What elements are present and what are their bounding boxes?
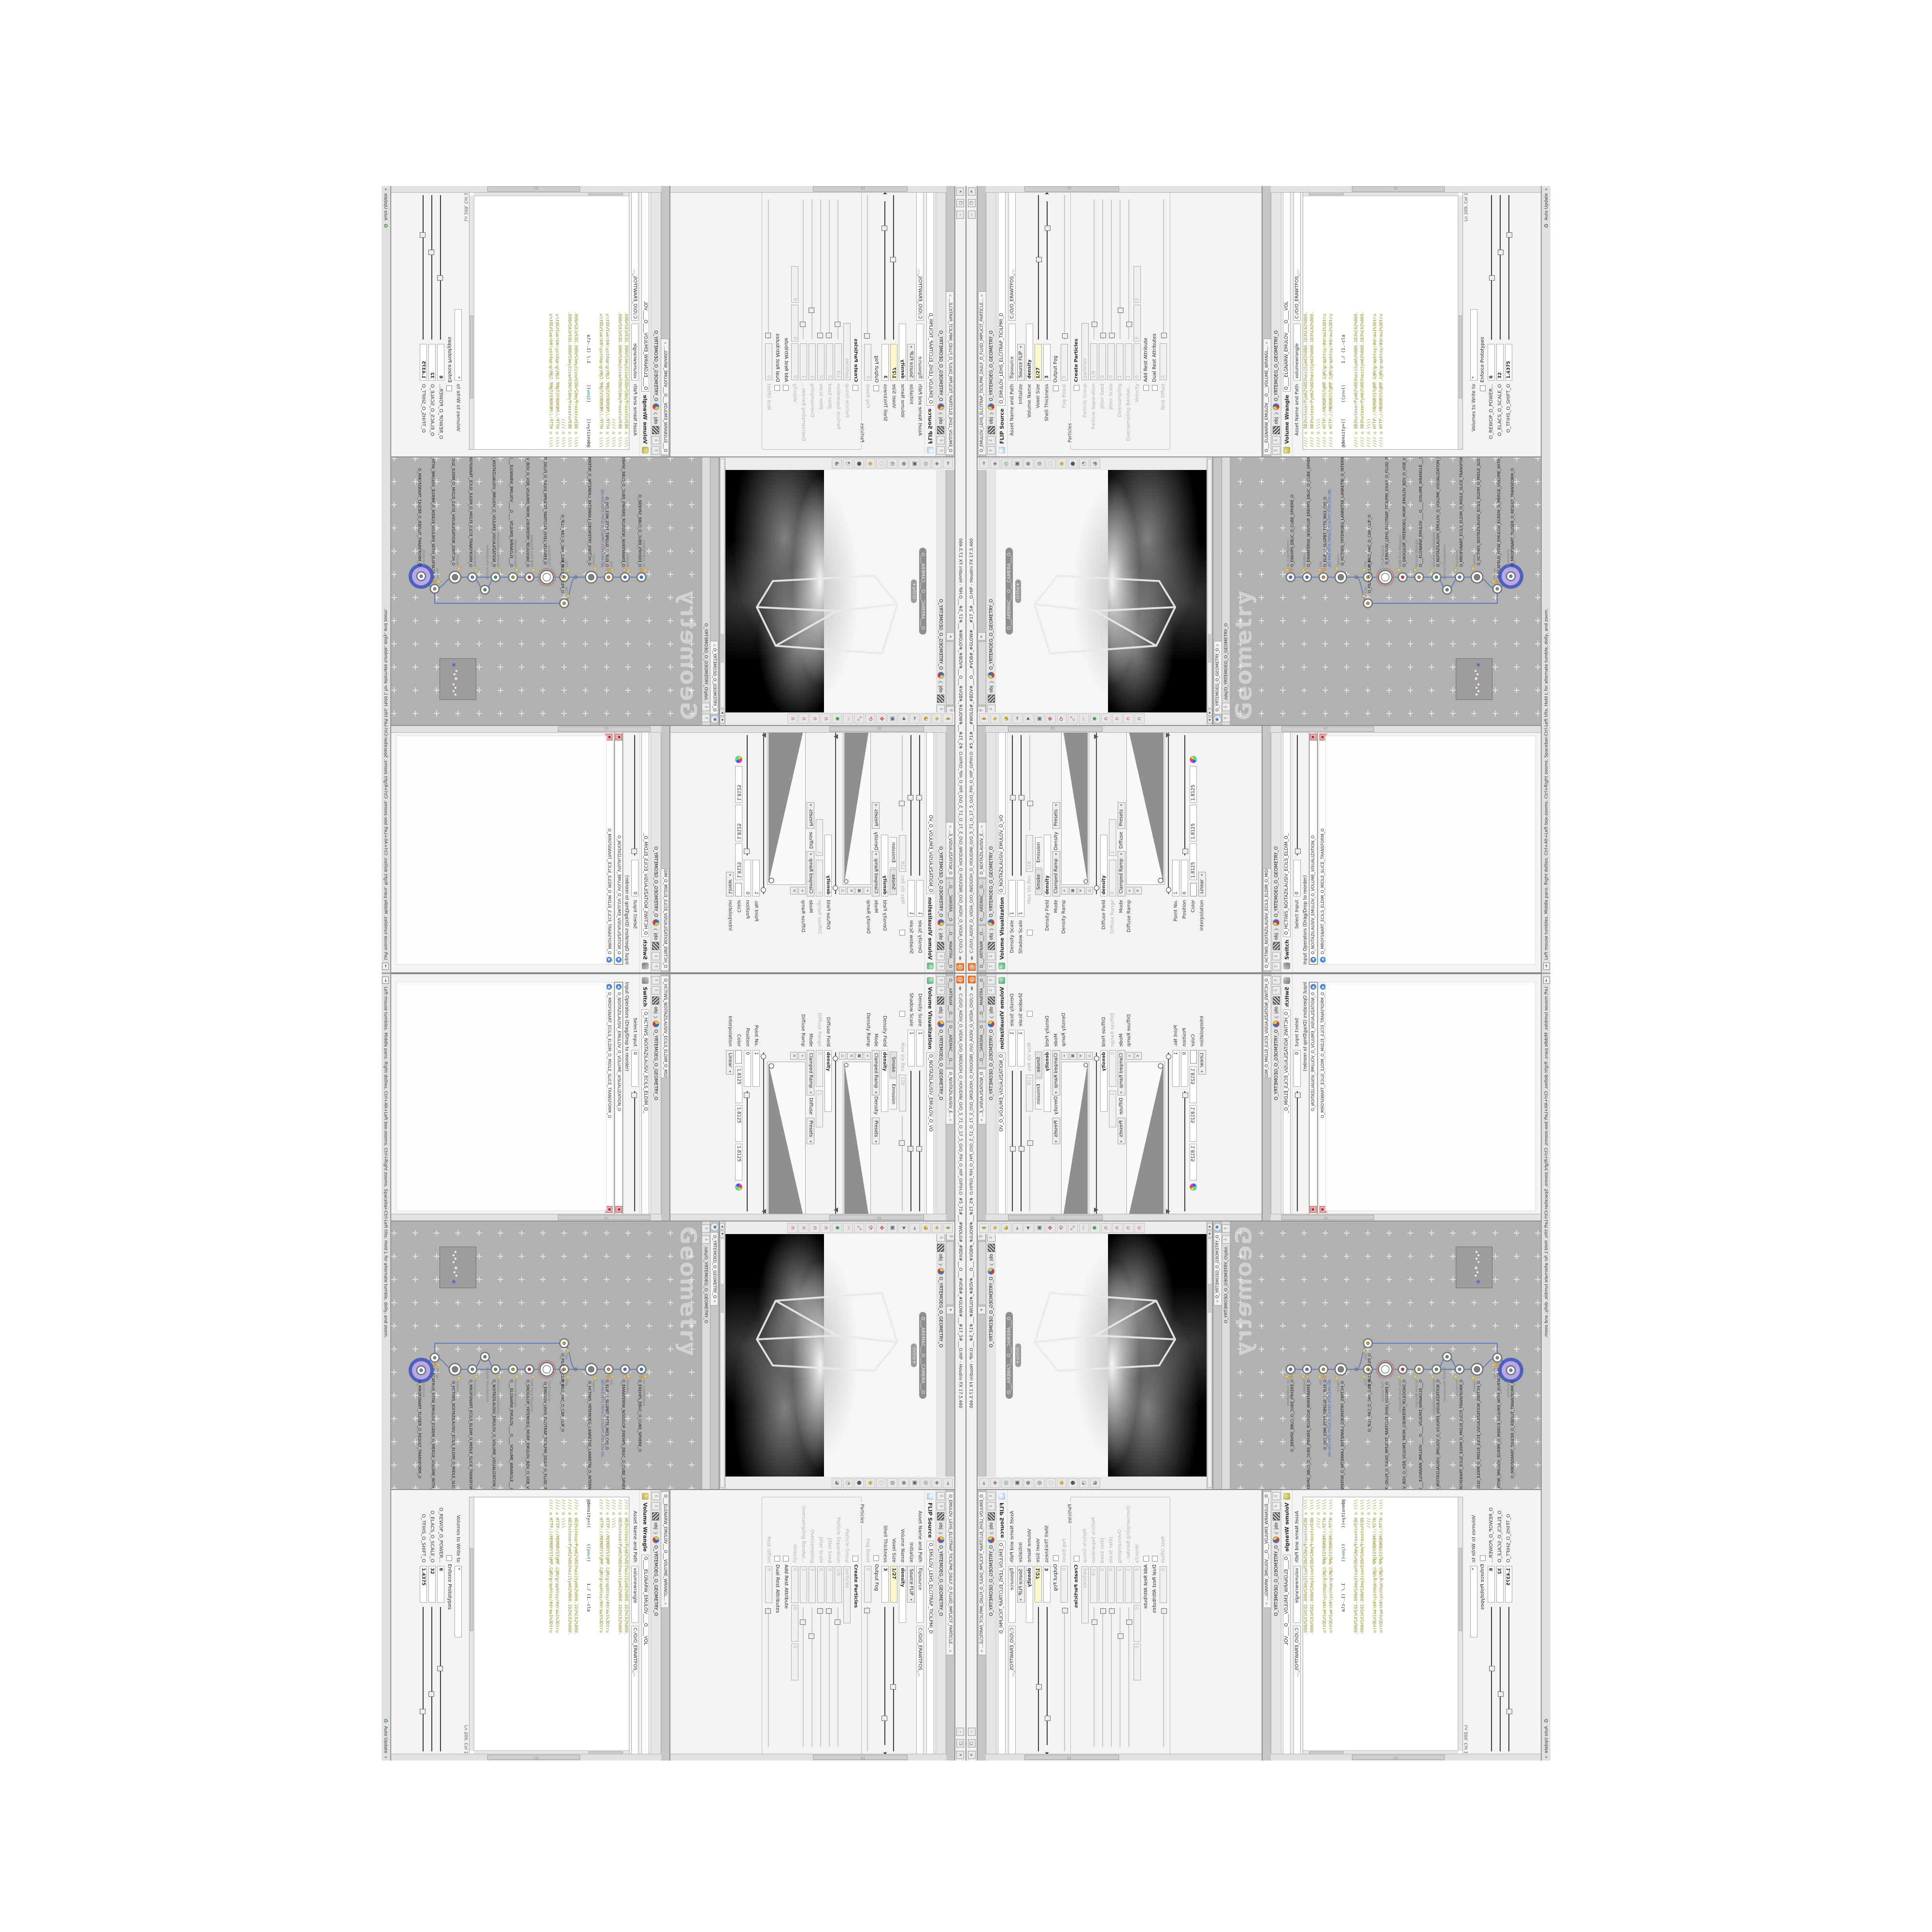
expand-icon[interactable]: ▸ — [946, 1306, 954, 1314]
show-handles-icon[interactable]: ◈ — [990, 714, 1000, 724]
tab-camera[interactable]: O___AREMAC___O... — [946, 1022, 954, 1068]
translate-icon[interactable]: ✥ — [1046, 714, 1056, 724]
tab-camera[interactable]: O___AREMAC___O... — [978, 1022, 986, 1068]
node-name-field[interactable]: O_HCTIWS_NOITAZILAUSIV_ECILS_ELDIM_O_ — [641, 729, 649, 937]
param-field[interactable]: 1 — [1017, 1030, 1024, 1066]
projection-pill[interactable]: Ortho ▾ — [1015, 580, 1021, 603]
list-item[interactable]: ◀O_NOITAZILAUSIV_EMULOV_O_VOLUME_VISUALI… — [1309, 982, 1318, 1215]
param-field[interactable]: 1 — [916, 1030, 923, 1066]
pane-tab-bar[interactable]: ◉ ⚲ ▸ — [946, 457, 954, 725]
node-name-field[interactable]: O_EMULOV_LEHS_ELCITRAP_TICILPMI_D — [926, 189, 934, 406]
tab-volume-visualization[interactable]: O_NOITAZILAUSIV_E...✕ — [978, 822, 986, 877]
slider[interactable] — [635, 1091, 636, 1211]
slider[interactable] — [1500, 195, 1501, 340]
show-handles-icon[interactable]: ◈ — [932, 714, 942, 724]
tab-mantra[interactable]: O___ARTNAM___O... — [978, 925, 986, 971]
network-node[interactable]: SwitchO_HCTIWS_NOITAZILAUSIV_ECILS_ELDIM… — [449, 1364, 461, 1489]
close-icon[interactable]: ✕ — [1265, 341, 1269, 344]
node-name-field[interactable]: O_EMULOV_LEHS_ELCITRAP_TICILPMI_D — [926, 1541, 934, 1758]
breadcrumb-node[interactable]: O_YRTEMOEG_O_GEOMETRY_O — [989, 846, 994, 917]
slider[interactable] — [1038, 195, 1039, 340]
lock-camera-icon[interactable]: ▣ — [909, 459, 920, 469]
radial-menu-icon[interactable]: ◉ — [710, 1223, 719, 1231]
scrollbar[interactable] — [986, 1754, 1262, 1761]
camera-name-pill[interactable]: O___AREMAC___O___CAMERA___O — [1006, 1312, 1013, 1399]
secure-selection-icon[interactable]: ◗ — [979, 1223, 989, 1233]
rotate-icon[interactable]: ⟳ — [865, 1223, 875, 1233]
projection-pill[interactable]: Ortho ▾ — [1015, 1344, 1021, 1367]
nav-down-icon[interactable]: ⇩ — [702, 1236, 710, 1244]
scrollbar[interactable] — [986, 726, 1262, 733]
snap-multi-icon[interactable]: ∩ — [1135, 1223, 1145, 1233]
tab-smoke[interactable]: Smoke — [1035, 1051, 1042, 1078]
network-node[interactable]: PolyWireO_EMARFERIW_NOGYLOP_EREHPS_EBUC_… — [621, 1365, 631, 1489]
initialize-dropdown[interactable]: Source FLIP — [1017, 1566, 1025, 1603]
pane-tab-bar[interactable]: O_HCTIWS_NOITAZILAUSIV_ECILS_ELDIM_O_MID… — [1263, 726, 1271, 972]
snap-point-icon[interactable]: ∩ — [798, 1223, 809, 1233]
timeline-track[interactable] — [720, 1238, 724, 1488]
slider[interactable] — [1128, 199, 1129, 339]
tab-smoke[interactable]: Smoke — [890, 869, 897, 895]
ramp-handle-track[interactable] — [833, 1052, 838, 1216]
network-node[interactable]: Volume WrangleO___ELGNARW_EMULOV____O___… — [509, 1365, 519, 1489]
param-field[interactable]: 0 — [631, 860, 639, 896]
prev-frame-icon[interactable]: ◀ — [1207, 717, 1212, 724]
slider[interactable] — [1012, 1071, 1013, 1211]
slider[interactable] — [1491, 195, 1492, 340]
network-node[interactable]: Volume WrangleO___ELGNARW_EMULOV____O___… — [1414, 1365, 1424, 1489]
tab-mantra[interactable]: O___ARTNAM___O... — [946, 976, 954, 1021]
network-node[interactable]: TransformO_MROFSNART_TLUSER_O_RESULT_TRA… — [409, 468, 434, 589]
nav-down-icon[interactable]: ⇩ — [937, 705, 945, 713]
breadcrumb-root[interactable]: obj — [1274, 1522, 1279, 1529]
select-mode-icon[interactable]: ▣ — [887, 1223, 897, 1233]
select-mode-icon[interactable]: ▣ — [1035, 1223, 1045, 1233]
scrollbar[interactable] — [986, 1214, 1262, 1221]
prev-frame-icon[interactable]: ◀ — [1207, 1223, 1212, 1230]
network-minimap[interactable] — [1456, 1247, 1492, 1288]
color-wheel-icon[interactable] — [735, 1183, 742, 1191]
tab-volume-visualization[interactable]: O_NOITAZILAUSIV_E...✕ — [946, 1069, 954, 1124]
network-node[interactable]: FileO_ELIF_O_SLGPBT_PETS_M03_OBJ_OJBO.M0… — [1318, 1365, 1332, 1457]
list-item[interactable]: ◀O_NOITAZILAUSIV_EMULOV_O_VOLUME_VISUALI… — [614, 732, 623, 965]
hide-objects-icon[interactable]: ⊗ — [1023, 1478, 1034, 1488]
presets-dropdown[interactable]: Presets — [1052, 1118, 1060, 1145]
translate-icon[interactable]: ✥ — [876, 714, 886, 724]
slider[interactable] — [1184, 1091, 1185, 1211]
transform-axis-icon[interactable]: ✱ — [1090, 714, 1100, 724]
tab-flip-source[interactable]: O_EMULOV_LEHS_ELCITRAP_TICILPMI_DIULF_O_… — [946, 1492, 954, 1655]
scrollbar[interactable] — [1271, 186, 1541, 193]
slider[interactable] — [1064, 195, 1065, 340]
breadcrumb-node[interactable]: O_YRTEMOEG_O_GEOMETRY_O — [989, 330, 994, 401]
tab-switch[interactable]: O_HCTIWS_NOITAZILAUSIV_ECILS_ELDIM_O_MID… — [661, 868, 669, 971]
close-icon[interactable]: ✕ — [712, 1300, 716, 1303]
back-icon[interactable]: ◄ — [943, 1478, 953, 1488]
pose-icon[interactable]: ✂ — [1079, 714, 1089, 724]
tab-emission[interactable]: Emission — [890, 1079, 897, 1109]
breadcrumb-root[interactable]: obj — [653, 1522, 659, 1529]
breadcrumb-node[interactable]: O_YRTEMOEG_O_GEOMETRY_O — [938, 330, 944, 401]
headlight-icon[interactable]: ◉ — [865, 1478, 875, 1488]
slider[interactable] — [920, 735, 921, 876]
pane-tab-bar[interactable]: ◉ O_YRTEMOEG_O_GEOMETRY_O✕ — [710, 1222, 719, 1489]
ramp-buttons[interactable]: +▦✕△ — [1061, 887, 1093, 895]
checkbox[interactable] — [783, 385, 789, 391]
secure-selection-icon[interactable]: ◗ — [943, 714, 953, 724]
snap-grid-icon[interactable]: ∩ — [821, 714, 831, 724]
delete-icon[interactable]: ✖ — [606, 734, 612, 740]
slider[interactable] — [1297, 735, 1298, 855]
network-node[interactable]: Volume Visualization — [1443, 1352, 1451, 1402]
close-icon[interactable]: ✕ — [980, 1119, 984, 1122]
slider[interactable] — [432, 195, 433, 340]
auto-update-dropdown[interactable]: Auto Update — [1544, 193, 1549, 220]
mode-dropdown[interactable]: Clamped Ramp — [1052, 1050, 1060, 1095]
minimize-button[interactable]: – — [957, 1728, 965, 1736]
checkbox[interactable] — [874, 385, 880, 391]
nav-down-icon[interactable]: ⇩ — [987, 952, 995, 960]
slider[interactable] — [1120, 1607, 1121, 1747]
breadcrumb-node[interactable]: O_YRTEMOEG_O_GEOMETRY_O — [1274, 846, 1279, 917]
slider[interactable] — [838, 199, 839, 339]
snap-multi-icon[interactable]: ∩ — [1135, 714, 1145, 724]
presets-dropdown[interactable]: Presets — [872, 802, 880, 829]
slider[interactable] — [812, 1607, 813, 1747]
window-titlebar[interactable]: @ ◀▶ C:/O/O_AIDIV_O_VIDIA_O/O_INIDUOH_O_… — [955, 186, 966, 973]
light-icon[interactable]: ○ — [1046, 1478, 1056, 1488]
slider[interactable] — [747, 1091, 748, 1211]
close-icon[interactable]: ✕ — [980, 1649, 984, 1652]
pose-icon[interactable]: ✂ — [843, 714, 853, 724]
breadcrumb-root[interactable]: obj — [989, 1254, 994, 1261]
slider[interactable] — [885, 1607, 886, 1745]
checkbox[interactable] — [783, 1556, 789, 1562]
param-field[interactable]: 128 — [1026, 1075, 1033, 1111]
breadcrumb-root[interactable]: obj — [989, 417, 994, 424]
checkbox[interactable] — [1027, 930, 1033, 936]
folder-tabs[interactable]: Smoke Emission — [1035, 1051, 1042, 1221]
breadcrumb-root[interactable]: obj — [653, 417, 659, 424]
slider[interactable] — [1508, 1607, 1509, 1751]
translate-icon[interactable]: ✥ — [876, 1223, 886, 1233]
lock-camera-icon[interactable]: ▣ — [1012, 459, 1023, 469]
slider[interactable] — [867, 195, 868, 340]
scrollbar[interactable] — [670, 726, 946, 733]
lock-camera-icon[interactable]: ▣ — [909, 1478, 920, 1488]
tab-network[interactable]: O_YRTEMOEG_O_GEOMETRY_O✕ — [1214, 1232, 1222, 1306]
headlight-icon[interactable]: ◉ — [1057, 459, 1067, 469]
snap-prim-icon[interactable]: ∩ — [1112, 1223, 1122, 1233]
network-node[interactable]: FileO_ELIF_O_SLGPBT_PETS_M03_OBJ_OJBO.M0… — [600, 489, 614, 582]
param-field[interactable]: density — [1044, 1050, 1051, 1112]
mode-dropdown[interactable]: Clamped Ramp — [807, 851, 815, 896]
translate-icon[interactable]: ✥ — [1046, 1223, 1056, 1233]
network-node[interactable]: VDB from PolygonsO_SNOGILOP_YRTEMOEG_MOR… — [525, 457, 535, 582]
auto-update-dropdown[interactable]: Auto Update — [384, 193, 388, 220]
ramp-handle-track[interactable] — [1094, 731, 1099, 894]
slider[interactable] — [1120, 199, 1121, 339]
viewport-canvas[interactable]: O___AREMAC___O___CAMERA___O Ortho ▾ — [725, 1234, 936, 1477]
layout-icon[interactable]: ◈ — [932, 459, 942, 469]
slider[interactable] — [432, 1607, 433, 1751]
network-node[interactable]: Volume Visualization — [481, 1352, 489, 1402]
pane-tab-bar[interactable]: O_EMULOV_LEHS_ELCITRAP_TICILPMI_DIULF_O_… — [946, 186, 954, 456]
nav-down-icon[interactable]: ⇩ — [1272, 1502, 1280, 1510]
checkbox[interactable] — [900, 930, 906, 936]
auto-update-dropdown[interactable]: Auto Update — [384, 1726, 388, 1753]
network-node[interactable]: Volume Visualization — [1443, 545, 1451, 594]
window-titlebar[interactable]: @ ◀▶ C:/O/O_AIDIV_O_VIDIA_O/O_INIDUOH_O_… — [966, 974, 977, 1761]
minimize-button[interactable]: – — [957, 211, 965, 219]
network-node[interactable]: SwitchO_HCTIWS_YRTEMOEG_LANRETXE_LANRETN… — [585, 1364, 597, 1489]
color-wheel-icon[interactable] — [735, 756, 742, 763]
light-icon[interactable]: ○ — [1046, 459, 1056, 469]
checkbox[interactable] — [1480, 1555, 1486, 1561]
scrollbar[interactable] — [391, 726, 661, 733]
recook-icon[interactable]: ◎ — [1001, 459, 1011, 469]
rotate-icon[interactable]: ⟳ — [1057, 714, 1067, 724]
nav-down-icon[interactable]: ⇩ — [652, 986, 660, 994]
close-button[interactable]: ✕ — [968, 1751, 976, 1759]
close-icon[interactable]: ✕ — [663, 341, 667, 344]
pane-tab-bar[interactable]: O___ELGNARW_EMULOV___O___VOLUME_WRANGL..… — [661, 1490, 669, 1761]
scrollbar[interactable] — [1458, 1497, 1463, 1751]
select-brush-icon[interactable]: ◕ — [921, 1223, 931, 1233]
param-field[interactable]: 0 — [631, 1050, 639, 1087]
breadcrumb-node[interactable]: O_YRTEMOEG_O_GEOMETRY_O — [989, 1545, 994, 1616]
nav-up-icon[interactable]: ⇧ — [937, 962, 945, 970]
network-node[interactable]: Volume Visualization — [481, 545, 489, 594]
breadcrumb-root[interactable]: obj — [1274, 933, 1279, 940]
slider[interactable] — [1064, 1607, 1065, 1751]
scrollbar[interactable] — [391, 1214, 661, 1221]
node-name-field[interactable]: O_HCTIWS_NOITAZILAUSIV_ECILS_ELDIM_O_ — [1283, 1009, 1291, 1218]
viewport-playbar[interactable]: ◀ ▶ — [1207, 457, 1212, 725]
slider[interactable] — [1029, 1116, 1030, 1211]
network-node[interactable]: FLIP SourceO_EMULOV_LEHS_ELCITRAP_TICILP… — [538, 457, 555, 586]
tab-scene-view[interactable] — [946, 641, 954, 705]
breadcrumb-root[interactable]: obj — [989, 933, 994, 940]
presets-dropdown[interactable]: Presets — [1052, 802, 1060, 829]
breadcrumb-node[interactable]: O_YRTEMOEG_O_GEOMETRY_O — [1274, 1029, 1279, 1100]
node-name-field[interactable]: O_HCTIWS_NOITAZILAUSIV_ECILS_ELDIM_O_ — [1283, 729, 1291, 937]
tab-camera[interactable]: O___AREMAC___O... — [978, 879, 986, 924]
checkbox[interactable] — [1480, 385, 1486, 391]
nav-down-icon[interactable]: ⇩ — [937, 1234, 945, 1242]
nav-down-icon[interactable]: ⇩ — [987, 1234, 995, 1242]
param-field[interactable]: 128 — [1026, 835, 1033, 872]
breadcrumb-root[interactable]: obj — [653, 1007, 659, 1013]
snap-prim-icon[interactable]: ∩ — [810, 714, 820, 724]
network-canvas[interactable]: Geometry an_CubeSphereO_EREHPS_EBUC_O_CU… — [391, 1222, 702, 1489]
breadcrumb-node[interactable]: O_YRTEMOEG_O_GEOMETRY_O — [938, 599, 944, 670]
breadcrumb-root[interactable]: obj — [938, 1254, 944, 1261]
nav-down-icon[interactable]: ⇩ — [652, 436, 660, 444]
pane-tab-bar[interactable]: O___ARTNAM___O... O___AREMAC___O... O_NO… — [946, 974, 954, 1221]
snap-prim-icon[interactable]: ∩ — [810, 1223, 820, 1233]
scrollbar[interactable] — [670, 186, 946, 193]
hide-objects-icon[interactable]: ⊗ — [898, 1478, 909, 1488]
timeline-track[interactable] — [1207, 459, 1212, 708]
network-node[interactable]: Volume VisualizationO_NOITAZILAUSIV_EMUL… — [491, 457, 501, 582]
timeline-track[interactable] — [1207, 1238, 1212, 1488]
highquality-icon[interactable]: ● — [1068, 1478, 1078, 1488]
snap-multi-icon[interactable]: ∩ — [787, 1223, 797, 1233]
network-minimap[interactable] — [440, 658, 476, 700]
ghost-objects-icon[interactable]: ◍ — [887, 1478, 897, 1488]
breadcrumb-node[interactable]: O_YRTEMOEG_O_GEOMETRY_O — [989, 1277, 994, 1348]
delete-icon[interactable]: ✖ — [1310, 1206, 1317, 1213]
window-menu-icon[interactable]: ◀▶ — [970, 955, 974, 961]
list-item[interactable]: ◀O_NOITAZILAUSIV_EMULOV_O_VOLUME_VISUALI… — [1309, 732, 1318, 965]
ramp-buttons[interactable]: +✕ — [1126, 887, 1165, 895]
tab-network[interactable]: O_YRTEMOEG_O_GEOMETRY_O✕ — [1214, 641, 1222, 714]
breadcrumb-node[interactable]: O_YRTEMOEG_O_GEOMETRY_O — [653, 330, 659, 401]
tab-volume-visualization[interactable]: O_NOITAZILAUSIV_E...✕ — [978, 1069, 986, 1124]
param-field[interactable]: 1 — [1009, 880, 1016, 917]
network-node[interactable]: SwitchO_HCTIWS_YRTEMOEG_LANRETXE_LANRETN… — [1335, 457, 1347, 583]
node-name-field[interactable]: O_EMULOV_LEHS_ELCITRAP_TICILPMI_D — [998, 189, 1006, 406]
initialize-dropdown[interactable]: Source FLIP — [908, 1566, 915, 1603]
param-field[interactable]: 128 — [899, 835, 906, 872]
tab-smoke[interactable]: Smoke — [890, 1051, 897, 1078]
material-icon[interactable]: ◔ — [843, 459, 853, 469]
checkbox[interactable] — [1074, 385, 1080, 391]
network-minimap[interactable] — [440, 1247, 476, 1288]
expand-icon[interactable]: ▸ — [978, 1306, 986, 1314]
nav-up-icon[interactable]: ⇧ — [1272, 446, 1280, 455]
pane-tab-bar[interactable]: ◉ ⚲ ▸ — [978, 457, 986, 725]
breadcrumb-root[interactable]: obj — [938, 1522, 944, 1529]
initialize-dropdown[interactable]: Source FLIP — [1017, 344, 1025, 381]
breadcrumb-root[interactable]: obj — [989, 686, 994, 693]
scrollbar[interactable] — [391, 186, 661, 193]
recook-icon[interactable]: ◎ — [921, 1478, 931, 1488]
ghost-objects-icon[interactable]: ◍ — [1035, 1478, 1045, 1488]
ramp-widget[interactable] — [843, 731, 871, 885]
breadcrumb-node[interactable]: O_YRTEMOEG_O_GEOMETRY_O — [1274, 1545, 1279, 1616]
network-path-bar[interactable]: ⇧ ⇩ /obj/O_YRTEMOEG_O_GEOMETRY_O — [701, 457, 710, 725]
param-field[interactable]: density — [824, 1050, 832, 1112]
checkbox[interactable] — [900, 1011, 906, 1017]
nav-up-icon[interactable]: ⇧ — [987, 976, 995, 984]
scrollbar[interactable] — [670, 1214, 946, 1221]
list-item[interactable]: ◀O_NOITAZILAUSIV_EMULOV_O_VOLUME_VISUALI… — [614, 982, 623, 1215]
slider[interactable] — [829, 1607, 830, 1747]
scrollbar[interactable] — [1458, 196, 1463, 449]
vex-snippet-editor[interactable]: //// ◎ 0D3%steserPym62%0D3%eziSym62%000.… — [469, 191, 629, 450]
presets-dropdown[interactable]: Presets — [1118, 1118, 1125, 1145]
nav-down-icon[interactable]: ⇩ — [702, 703, 710, 711]
tab-switch[interactable]: O_HCTIWS_NOITAZILAUSIV_ECILS_ELDIM_O_MID… — [1263, 976, 1271, 1078]
ramp-widget[interactable] — [1126, 731, 1165, 885]
network-node[interactable]: VDB from PolygonsO_SNOGILOP_YRTEMOEG_MOR… — [1397, 1365, 1407, 1489]
param-field[interactable]: 1 — [908, 1030, 915, 1066]
breadcrumb-root[interactable]: obj — [653, 933, 659, 940]
checkbox[interactable] — [1053, 1555, 1059, 1561]
slider[interactable] — [768, 1607, 769, 1747]
close-icon[interactable]: ✕ — [1265, 1602, 1269, 1605]
breadcrumb-node[interactable]: O_YRTEMOEG_O_GEOMETRY_O — [938, 1029, 944, 1100]
breadcrumb-node[interactable]: O_YRTEMOEG_O_GEOMETRY_O — [938, 846, 944, 917]
network-node[interactable]: VDB from PolygonsO_SNOGILOP_YRTEMOEG_MOR… — [1397, 457, 1407, 582]
nav-up-icon[interactable]: ⇧ — [1272, 976, 1280, 984]
checkbox[interactable] — [853, 385, 859, 391]
close-icon[interactable]: ✕ — [980, 825, 984, 828]
snap-grid-icon[interactable]: ∩ — [1101, 1223, 1111, 1233]
presets-dropdown[interactable]: Presets — [807, 802, 815, 829]
slider[interactable] — [1128, 1607, 1129, 1747]
presets-dropdown[interactable]: Presets — [872, 1118, 880, 1145]
radial-menu-icon[interactable]: ◉ — [710, 715, 719, 724]
slider[interactable] — [821, 1607, 822, 1747]
breadcrumb-root[interactable]: obj — [989, 1007, 994, 1013]
network-node[interactable]: an_CubeSphereO_EREHPS_EBUC_O_CUBE_SPHERE… — [637, 1365, 647, 1452]
window-menu-icon[interactable]: ◀▶ — [970, 986, 974, 991]
checkbox[interactable] — [1152, 1556, 1158, 1562]
back-icon[interactable]: ◄ — [943, 459, 953, 469]
tab-volume-wrangle[interactable]: O___ELGNARW_EMULOV___O___VOLUME_WRANGL..… — [1263, 339, 1271, 455]
light-icon[interactable]: ○ — [876, 459, 886, 469]
node-name-field[interactable]: O_NOITAZILAUSIV_EMULOV_O_VO — [998, 1052, 1006, 1218]
nav-up-icon[interactable]: ⇧ — [987, 962, 995, 970]
select-brush-icon[interactable]: ◕ — [1001, 714, 1011, 724]
snap-prim-icon[interactable]: ∩ — [1112, 714, 1122, 724]
param-field[interactable]: density — [881, 835, 888, 896]
color-swatch[interactable] — [736, 883, 742, 896]
network-node[interactable]: TransformO_MROFSNART_ECILS_ELDIM_O_MIDLE… — [468, 1365, 478, 1489]
param-field[interactable]: density — [881, 1050, 888, 1112]
scrollbar[interactable] — [1271, 1214, 1541, 1221]
nav-down-icon[interactable]: ⇩ — [1272, 986, 1280, 994]
scrollbar[interactable] — [469, 196, 474, 449]
close-button[interactable]: ✕ — [957, 1751, 965, 1759]
radial-menu-icon[interactable]: ◉ — [1213, 715, 1222, 724]
select-brush-icon[interactable]: ◕ — [921, 714, 931, 724]
slider[interactable] — [1491, 1607, 1492, 1751]
param-field[interactable]: 0 — [1293, 860, 1301, 896]
nav-up-icon[interactable]: ⇧ — [937, 976, 945, 984]
prev-frame-icon[interactable]: ◀ — [720, 717, 725, 724]
ramp-widget[interactable] — [1061, 731, 1089, 885]
breadcrumb-root[interactable]: obj — [938, 417, 944, 424]
transform-axis-icon[interactable]: ✱ — [1090, 1223, 1100, 1233]
slider[interactable] — [1163, 1607, 1164, 1747]
slider[interactable] — [1021, 735, 1022, 876]
reorder-icon[interactable]: ◀ — [606, 957, 612, 963]
select-arrow-icon[interactable]: ➤ — [1023, 714, 1034, 724]
ramp-widget[interactable] — [1126, 1062, 1165, 1216]
interpolation-dropdown[interactable]: Linear — [1198, 872, 1206, 896]
nav-down-icon[interactable]: ⇩ — [1222, 1236, 1230, 1244]
slider[interactable] — [821, 199, 822, 339]
network-node[interactable]: an_CubeSphereO_EREHPS_EBUC_O_CUBE_SPHERE… — [1285, 1365, 1295, 1452]
node-name-field[interactable]: O_NOITAZILAUSIV_EMULOV_O_VO — [926, 729, 934, 895]
node-name-field[interactable]: O_NOITAZILAUSIV_EMULOV_O_VO — [926, 1052, 934, 1218]
scale-icon[interactable]: ⤢ — [854, 714, 864, 724]
nav-up-icon[interactable]: ⇧ — [1272, 1492, 1280, 1500]
mode-dropdown[interactable]: Clamped Ramp — [872, 1050, 880, 1095]
breadcrumb-node[interactable]: O_YRTEMOEG_O_GEOMETRY_O — [989, 1029, 994, 1100]
slider[interactable] — [440, 1607, 441, 1751]
select-brush-icon[interactable]: ◕ — [1001, 1223, 1011, 1233]
reorder-icon[interactable]: ◀ — [606, 984, 612, 990]
slider[interactable] — [803, 1607, 804, 1747]
pose-icon[interactable]: ✂ — [843, 1223, 853, 1233]
nav-up-icon[interactable]: ⇧ — [702, 1224, 710, 1233]
viewport-canvas[interactable]: O___AREMAC___O___CAMERA___O Ortho ▾ — [996, 470, 1207, 712]
